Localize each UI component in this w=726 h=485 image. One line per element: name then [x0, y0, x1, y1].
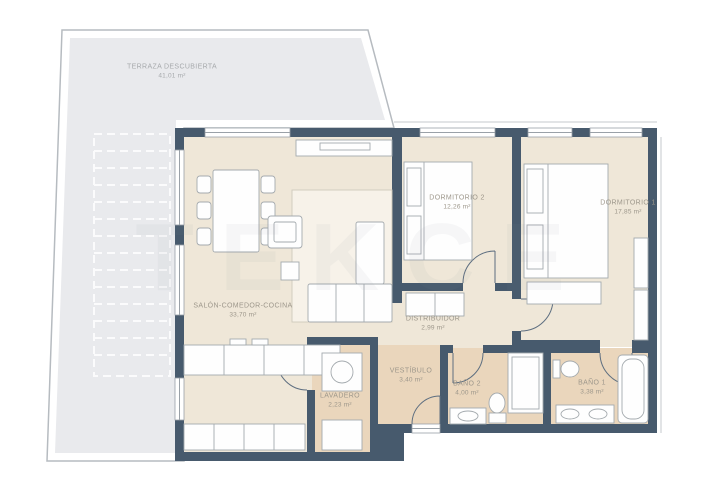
floor-plan: TEKCE TERRAZA DESCUBIERTA 41,01 m² SALÓN… [0, 0, 726, 485]
floor-plan-drawing [0, 0, 726, 485]
bedroom-2-furniture [404, 162, 472, 316]
